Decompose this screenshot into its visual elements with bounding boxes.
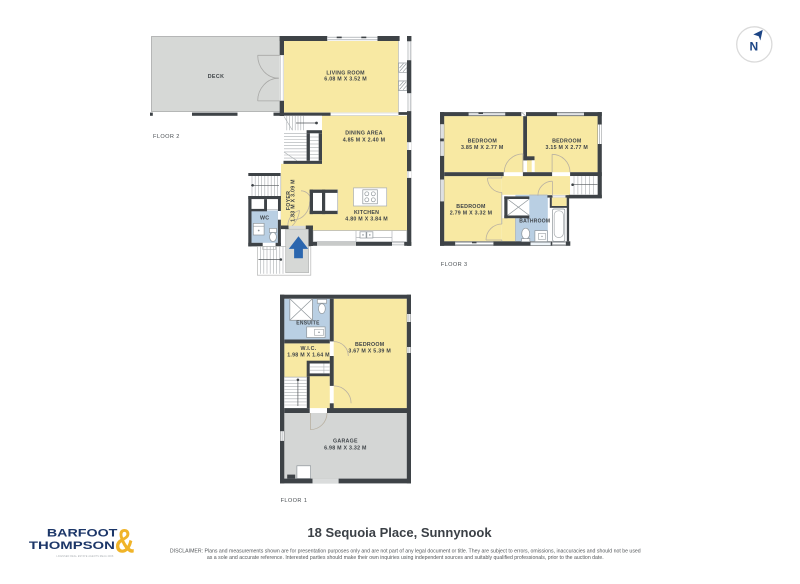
svg-text:W.I.C.: W.I.C. [301, 346, 317, 352]
svg-text:LIVING ROOM: LIVING ROOM [326, 70, 365, 76]
svg-text:6.08 M X 3.52 M: 6.08 M X 3.52 M [324, 77, 367, 83]
svg-text:18 Sequoia Place, Sunnynook: 18 Sequoia Place, Sunnynook [307, 525, 492, 540]
svg-text:FLOOR 2: FLOOR 2 [153, 134, 180, 140]
svg-text:BEDROOM: BEDROOM [552, 138, 582, 144]
svg-text:BEDROOM: BEDROOM [355, 342, 385, 348]
svg-text:1.98 M X 1.64 M: 1.98 M X 1.64 M [287, 352, 330, 358]
svg-text:KITCHEN: KITCHEN [354, 210, 379, 216]
svg-text:THOMPSON: THOMPSON [29, 540, 115, 552]
svg-text:DECK: DECK [208, 74, 225, 80]
svg-text:N: N [749, 40, 758, 54]
svg-text:GARAGE: GARAGE [333, 439, 358, 445]
svg-text:BEDROOM: BEDROOM [456, 204, 486, 210]
svg-text:1.83 M X 3.09 M: 1.83 M X 3.09 M [291, 179, 297, 222]
svg-text:BEDROOM: BEDROOM [468, 138, 498, 144]
svg-text:3.67 M X 5.39 M: 3.67 M X 5.39 M [348, 348, 391, 354]
svg-text:4.80 M X 3.84 M: 4.80 M X 3.84 M [345, 216, 388, 222]
svg-text:3.15 M X 2.77 M: 3.15 M X 2.77 M [545, 145, 588, 151]
svg-text:DINING AREA: DINING AREA [345, 131, 383, 137]
svg-text:3.85 M X 2.77 M: 3.85 M X 2.77 M [461, 145, 504, 151]
svg-text:6.98 M X 3.32 M: 6.98 M X 3.32 M [324, 445, 367, 451]
svg-text:ENSUITE: ENSUITE [296, 321, 320, 327]
svg-text:FLOOR 3: FLOOR 3 [441, 262, 468, 268]
svg-text:LICENSED REAL ESTATE AGENTS RE: LICENSED REAL ESTATE AGENTS REAA 2008 [56, 555, 114, 558]
svg-text:FLOOR 1: FLOOR 1 [281, 498, 308, 504]
svg-text:WC: WC [260, 216, 269, 222]
svg-text:4.85 M X 2.40 M: 4.85 M X 2.40 M [343, 137, 386, 143]
svg-text:2.79 M X 3.32 M: 2.79 M X 3.32 M [450, 211, 493, 217]
svg-text:&: & [115, 522, 135, 560]
svg-text:BARFOOT: BARFOOT [47, 528, 118, 540]
svg-text:BATHROOM: BATHROOM [519, 219, 550, 225]
svg-text:DISCLAIMER: Plans and measurem: DISCLAIMER: Plans and measurements shown… [170, 549, 641, 555]
svg-text:as a sole and accurate referen: as a sole and accurate reference. Intere… [207, 555, 604, 561]
